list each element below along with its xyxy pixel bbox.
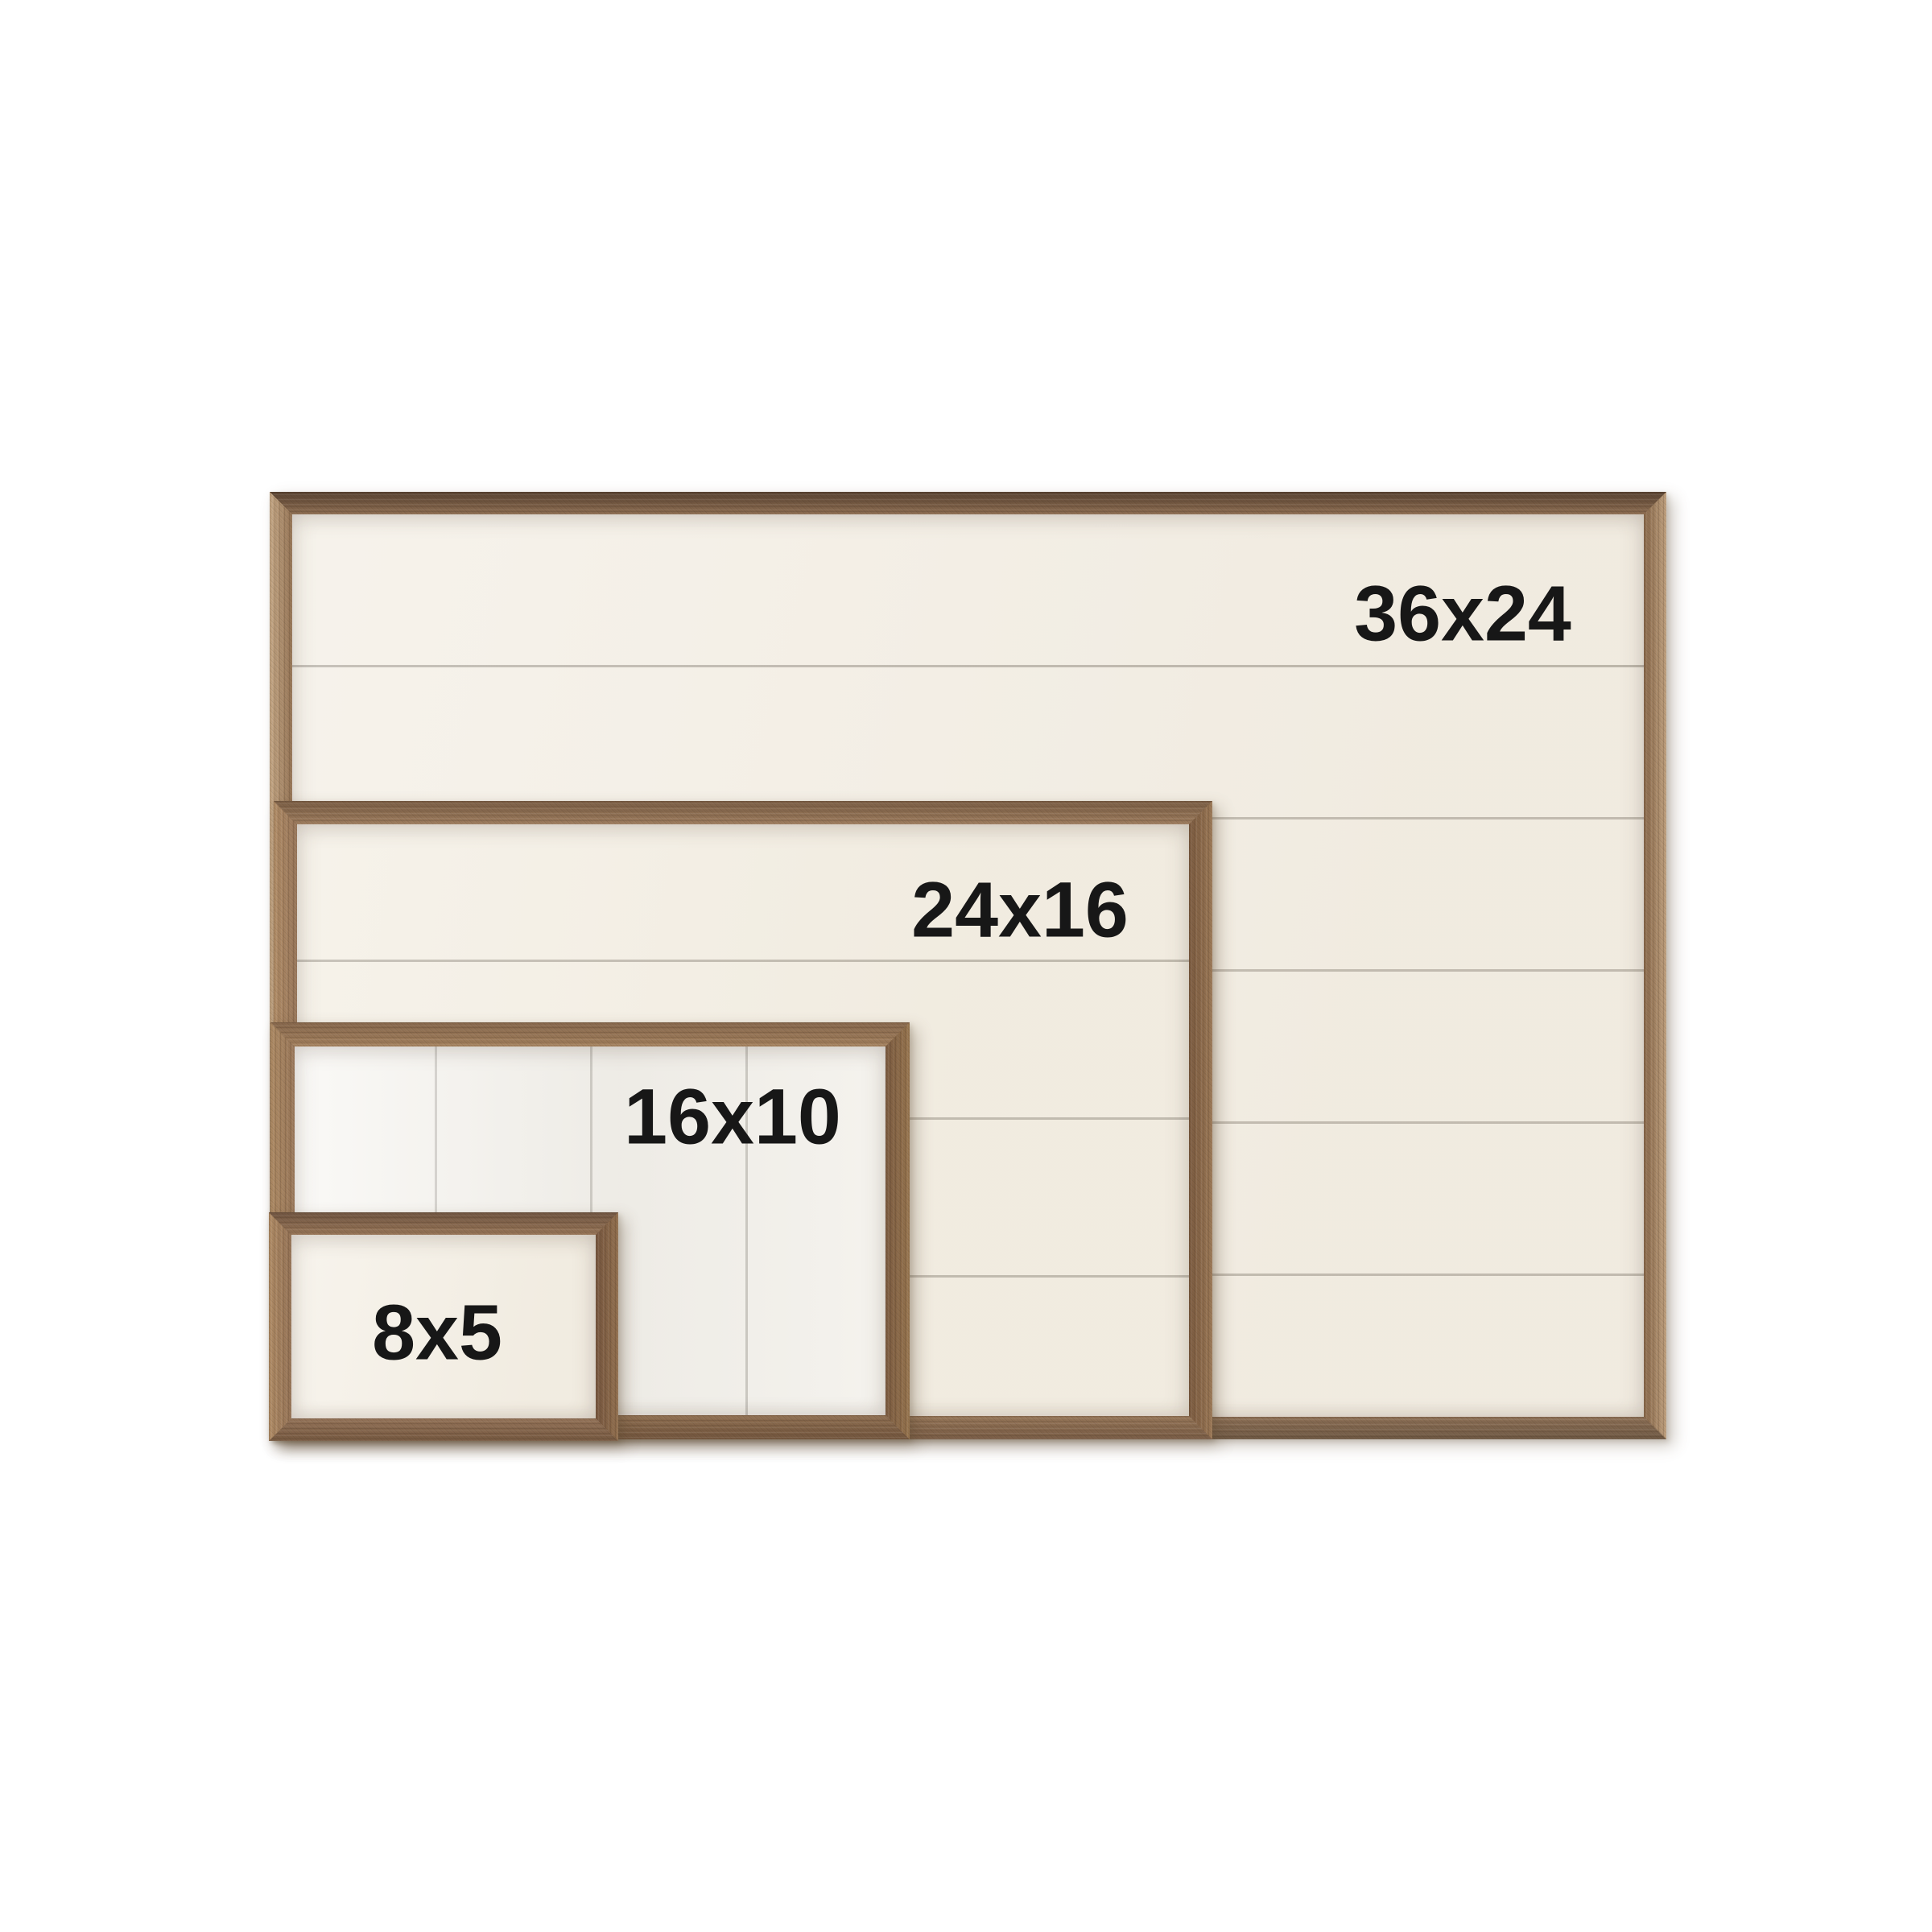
frame-right-36x24 <box>1644 492 1666 1439</box>
frame-top-16x10 <box>270 1022 910 1046</box>
size-label-8x5: 8x5 <box>372 1294 502 1372</box>
frame-right-8x5 <box>596 1212 618 1441</box>
board-8x5: 8x5 <box>269 1212 618 1441</box>
size-label-16x10: 16x10 <box>624 1078 841 1156</box>
frame-left-8x5 <box>269 1212 291 1441</box>
frame-right-16x10 <box>885 1022 910 1439</box>
size-label-36x24: 36x24 <box>1354 575 1571 653</box>
size-label-24x16: 24x16 <box>911 871 1129 949</box>
frame-right-24x16 <box>1189 801 1212 1439</box>
frame-bottom-8x5 <box>269 1418 618 1441</box>
frame-top-36x24 <box>270 492 1666 514</box>
frame-top-24x16 <box>274 801 1212 824</box>
frame-top-8x5 <box>269 1212 618 1235</box>
size-comparison-image: 36x24 24x16 16x10 8x5 <box>0 0 1932 1932</box>
